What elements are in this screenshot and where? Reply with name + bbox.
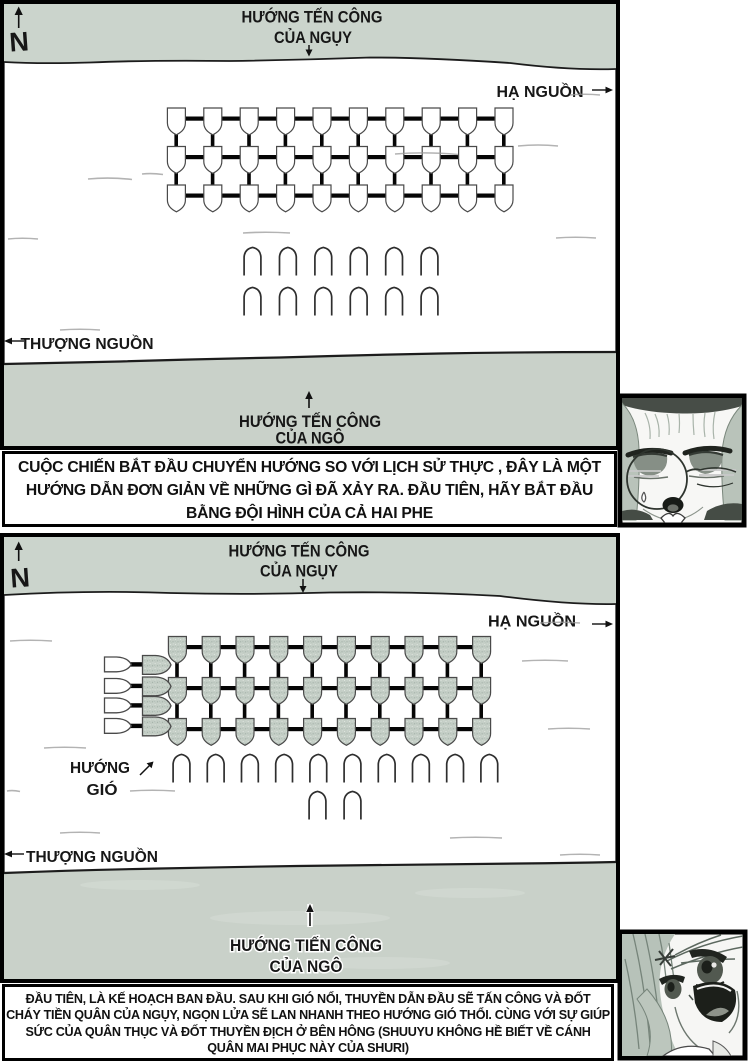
svg-text:HƯỚNG TẾN CÔNG: HƯỚNG TẾN CÔNG — [242, 8, 383, 27]
svg-text:N: N — [9, 562, 31, 593]
svg-text:HƯỚNG TIẾN CÔNG: HƯỚNG TIẾN CÔNG — [230, 936, 382, 955]
svg-text:CỦA NGÔ: CỦA NGÔ — [270, 957, 343, 976]
svg-text:CỦA NGỤY: CỦA NGỤY — [274, 28, 352, 47]
svg-text:CỦA NGÔ: CỦA NGÔ — [276, 429, 345, 448]
svg-text:HƯỚNG: HƯỚNG — [70, 759, 130, 777]
svg-text:HẠ NGUỒN: HẠ NGUỒN — [497, 82, 584, 101]
svg-text:CỦA NGỤY: CỦA NGỤY — [260, 562, 338, 581]
svg-text:HẠ NGUỒN: HẠ NGUỒN — [488, 612, 576, 631]
svg-text:N: N — [8, 26, 30, 57]
svg-text:HƯỚNG TẾN CÔNG: HƯỚNG TẾN CÔNG — [239, 412, 381, 431]
svg-text:HƯỚNG TẾN CÔNG: HƯỚNG TẾN CÔNG — [229, 542, 370, 561]
svg-text:THƯỢNG NGUỒN: THƯỢNG NGUỒN — [26, 847, 158, 866]
svg-text:THƯỢNG NGUỒN: THƯỢNG NGUỒN — [21, 334, 154, 353]
svg-text:GIÓ: GIÓ — [87, 781, 118, 799]
